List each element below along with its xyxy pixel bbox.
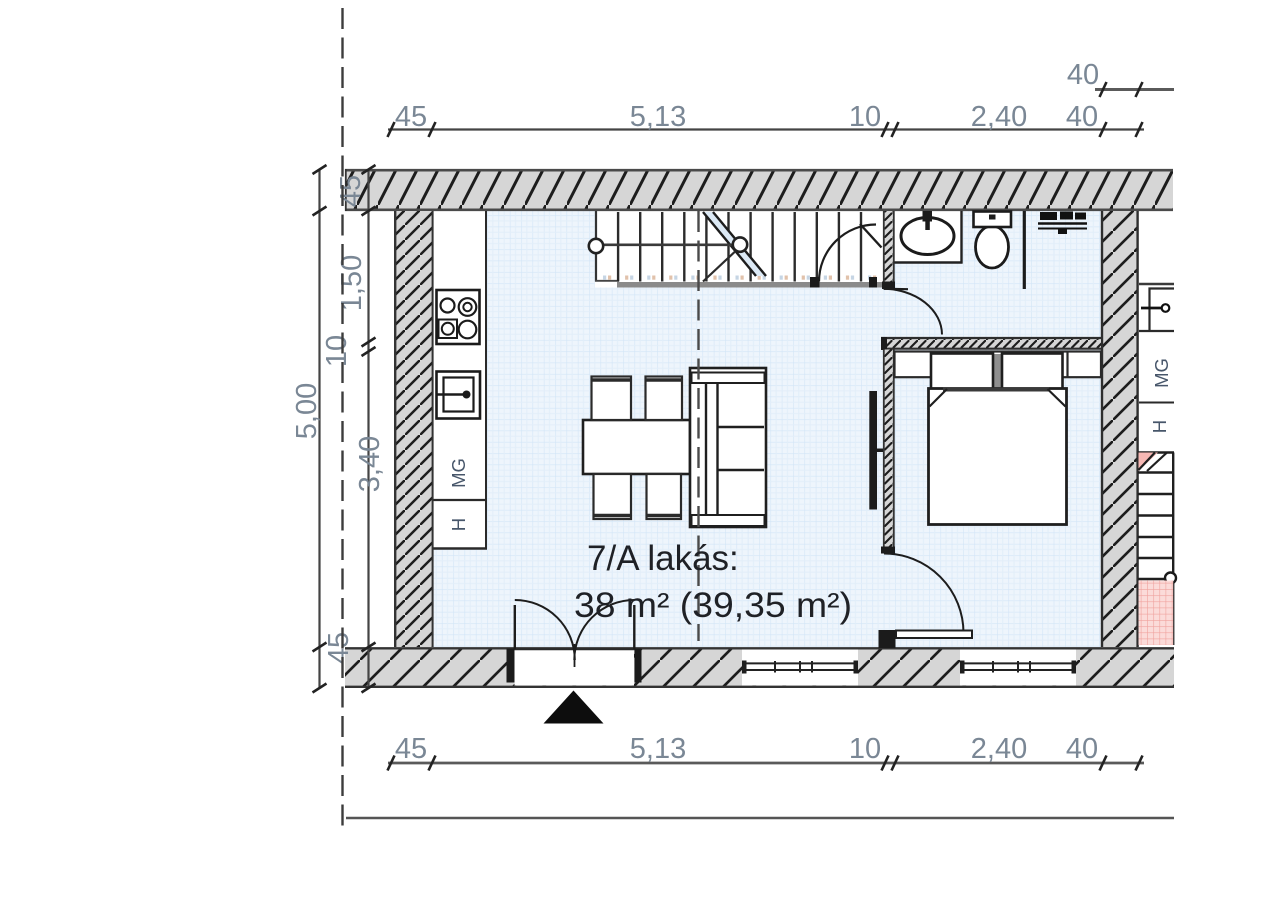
- svg-text:40: 40: [1067, 59, 1099, 91]
- svg-text:40: 40: [1066, 733, 1098, 765]
- svg-text:10: 10: [849, 101, 881, 133]
- svg-text:5,13: 5,13: [630, 733, 686, 765]
- svg-text:10: 10: [849, 733, 881, 765]
- svg-text:5,00: 5,00: [291, 383, 323, 439]
- svg-text:10: 10: [321, 335, 353, 367]
- svg-text:2,40: 2,40: [971, 733, 1027, 765]
- svg-text:H: H: [448, 518, 469, 531]
- svg-text:5,13: 5,13: [630, 101, 686, 133]
- svg-text:7/A lakás:: 7/A lakás:: [587, 539, 739, 578]
- svg-text:MG: MG: [1151, 358, 1172, 388]
- svg-text:H: H: [1149, 420, 1170, 433]
- svg-text:38 m² (39,35 m²): 38 m² (39,35 m²): [574, 586, 852, 625]
- svg-text:45: 45: [395, 733, 427, 765]
- svg-text:45: 45: [323, 632, 355, 664]
- svg-text:45: 45: [335, 175, 367, 207]
- svg-text:2,40: 2,40: [971, 101, 1027, 133]
- svg-text:40: 40: [1066, 101, 1098, 133]
- svg-text:MG: MG: [448, 458, 469, 488]
- svg-text:1,50: 1,50: [336, 255, 368, 311]
- svg-text:3,40: 3,40: [354, 436, 386, 492]
- svg-text:45: 45: [395, 101, 427, 133]
